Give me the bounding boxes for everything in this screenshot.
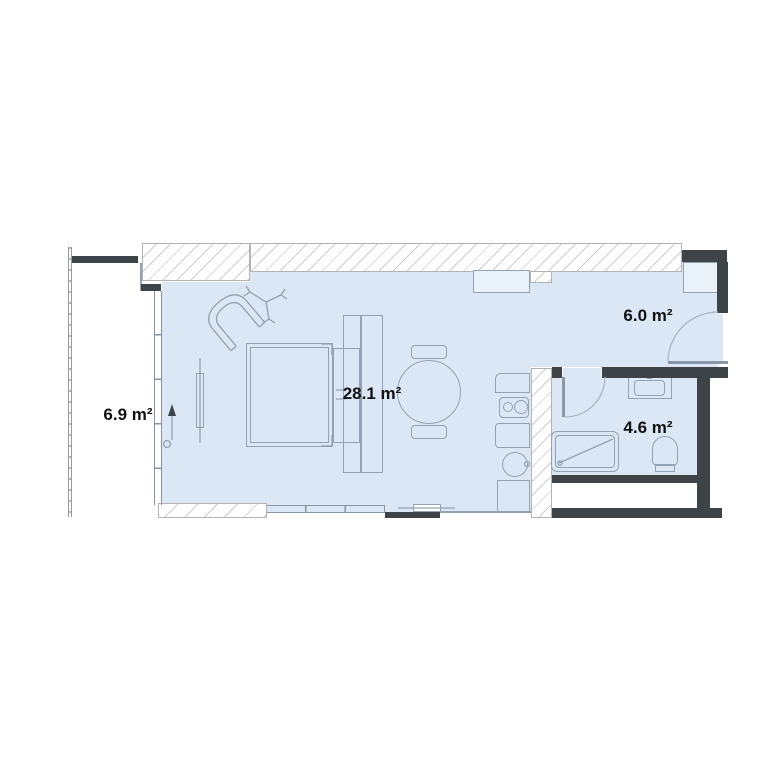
living-room-area-label: 28.1 m² [334, 384, 410, 404]
armchair [202, 288, 265, 351]
balcony-area-label: 6.9 m² [90, 405, 166, 425]
shower-diagonal [559, 439, 613, 463]
bathroom-door-swing-arc [565, 377, 605, 417]
pillow-fold-bottom [321, 435, 332, 446]
pillow-fold-top [321, 344, 332, 355]
floor-plan: 6.9 m² 28.1 m² 6.0 m² 4.6 m² [0, 0, 768, 768]
hallway-area-label: 6.0 m² [610, 306, 686, 326]
kitchen-tap [525, 462, 530, 467]
bathroom-area-label: 4.6 m² [610, 418, 686, 438]
direction-arrow-head [168, 404, 176, 416]
